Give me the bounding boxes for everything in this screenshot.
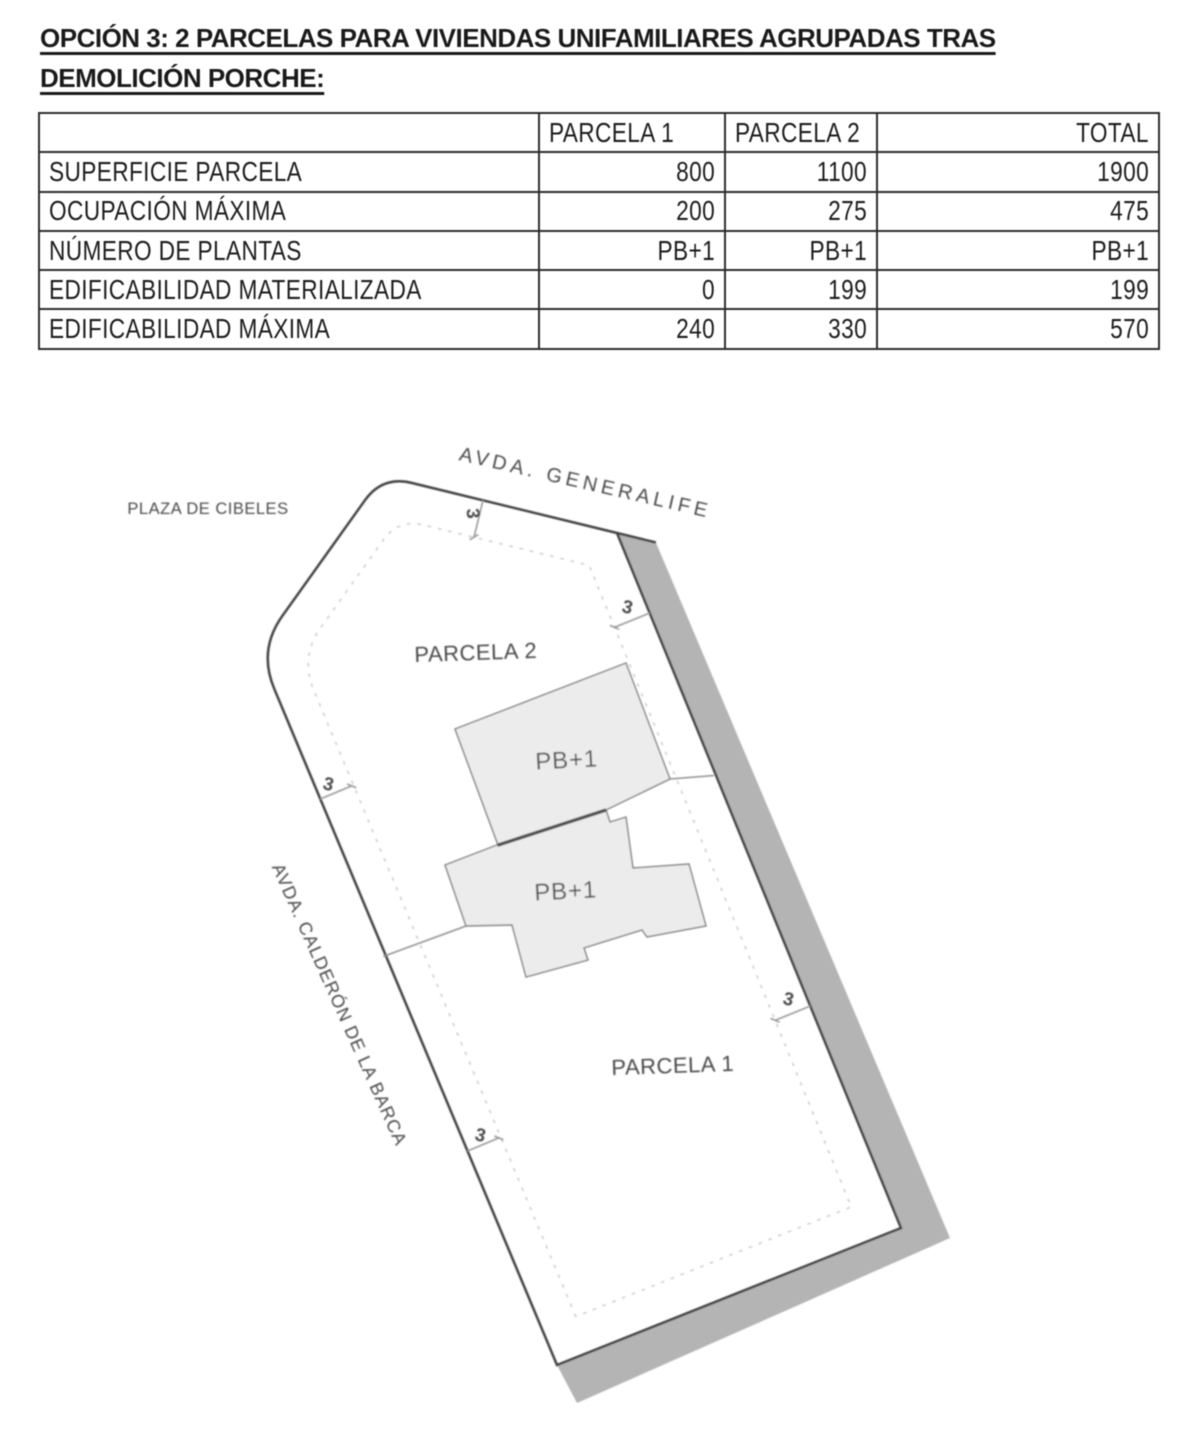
svg-text:3: 3 [781,987,796,1010]
svg-text:3: 3 [620,595,635,618]
svg-text:PARCELA 1: PARCELA 1 [611,1051,735,1080]
svg-text:AVDA. CALDERÓN DE LA BARCA: AVDA. CALDERÓN DE LA BARCA [268,860,412,1149]
svg-text:3: 3 [321,772,336,795]
svg-text:PLAZA DE CIBELES: PLAZA DE CIBELES [127,500,288,518]
svg-text:PB+1: PB+1 [535,745,599,775]
svg-text:PARCELA 2: PARCELA 2 [414,638,538,667]
svg-text:PB+1: PB+1 [534,876,598,906]
svg-text:AVDA. GENERALIFE: AVDA. GENERALIFE [457,443,713,522]
svg-text:3: 3 [463,507,485,519]
